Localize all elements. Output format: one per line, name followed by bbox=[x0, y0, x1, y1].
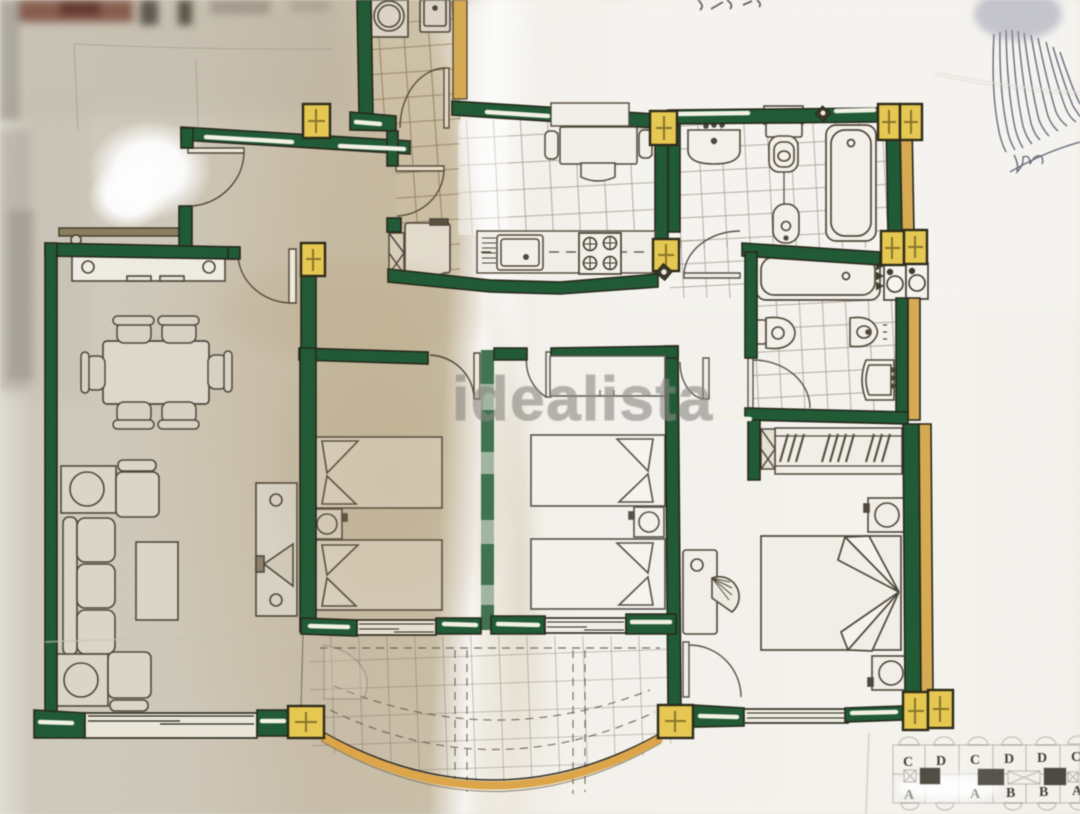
svg-text:D: D bbox=[1037, 751, 1047, 766]
svg-text:C: C bbox=[970, 753, 980, 768]
svg-text:B: B bbox=[1039, 785, 1048, 800]
svg-text:B: B bbox=[1006, 786, 1015, 801]
svg-text:A: A bbox=[1072, 784, 1080, 799]
svg-text:A: A bbox=[970, 787, 981, 802]
svg-text:D: D bbox=[936, 754, 946, 769]
svg-text:C: C bbox=[1071, 750, 1080, 765]
svg-text:A: A bbox=[904, 788, 915, 803]
svg-text:D: D bbox=[1004, 752, 1014, 767]
svg-text:C: C bbox=[903, 755, 913, 770]
svg-text:idealista: idealista bbox=[452, 365, 714, 434]
